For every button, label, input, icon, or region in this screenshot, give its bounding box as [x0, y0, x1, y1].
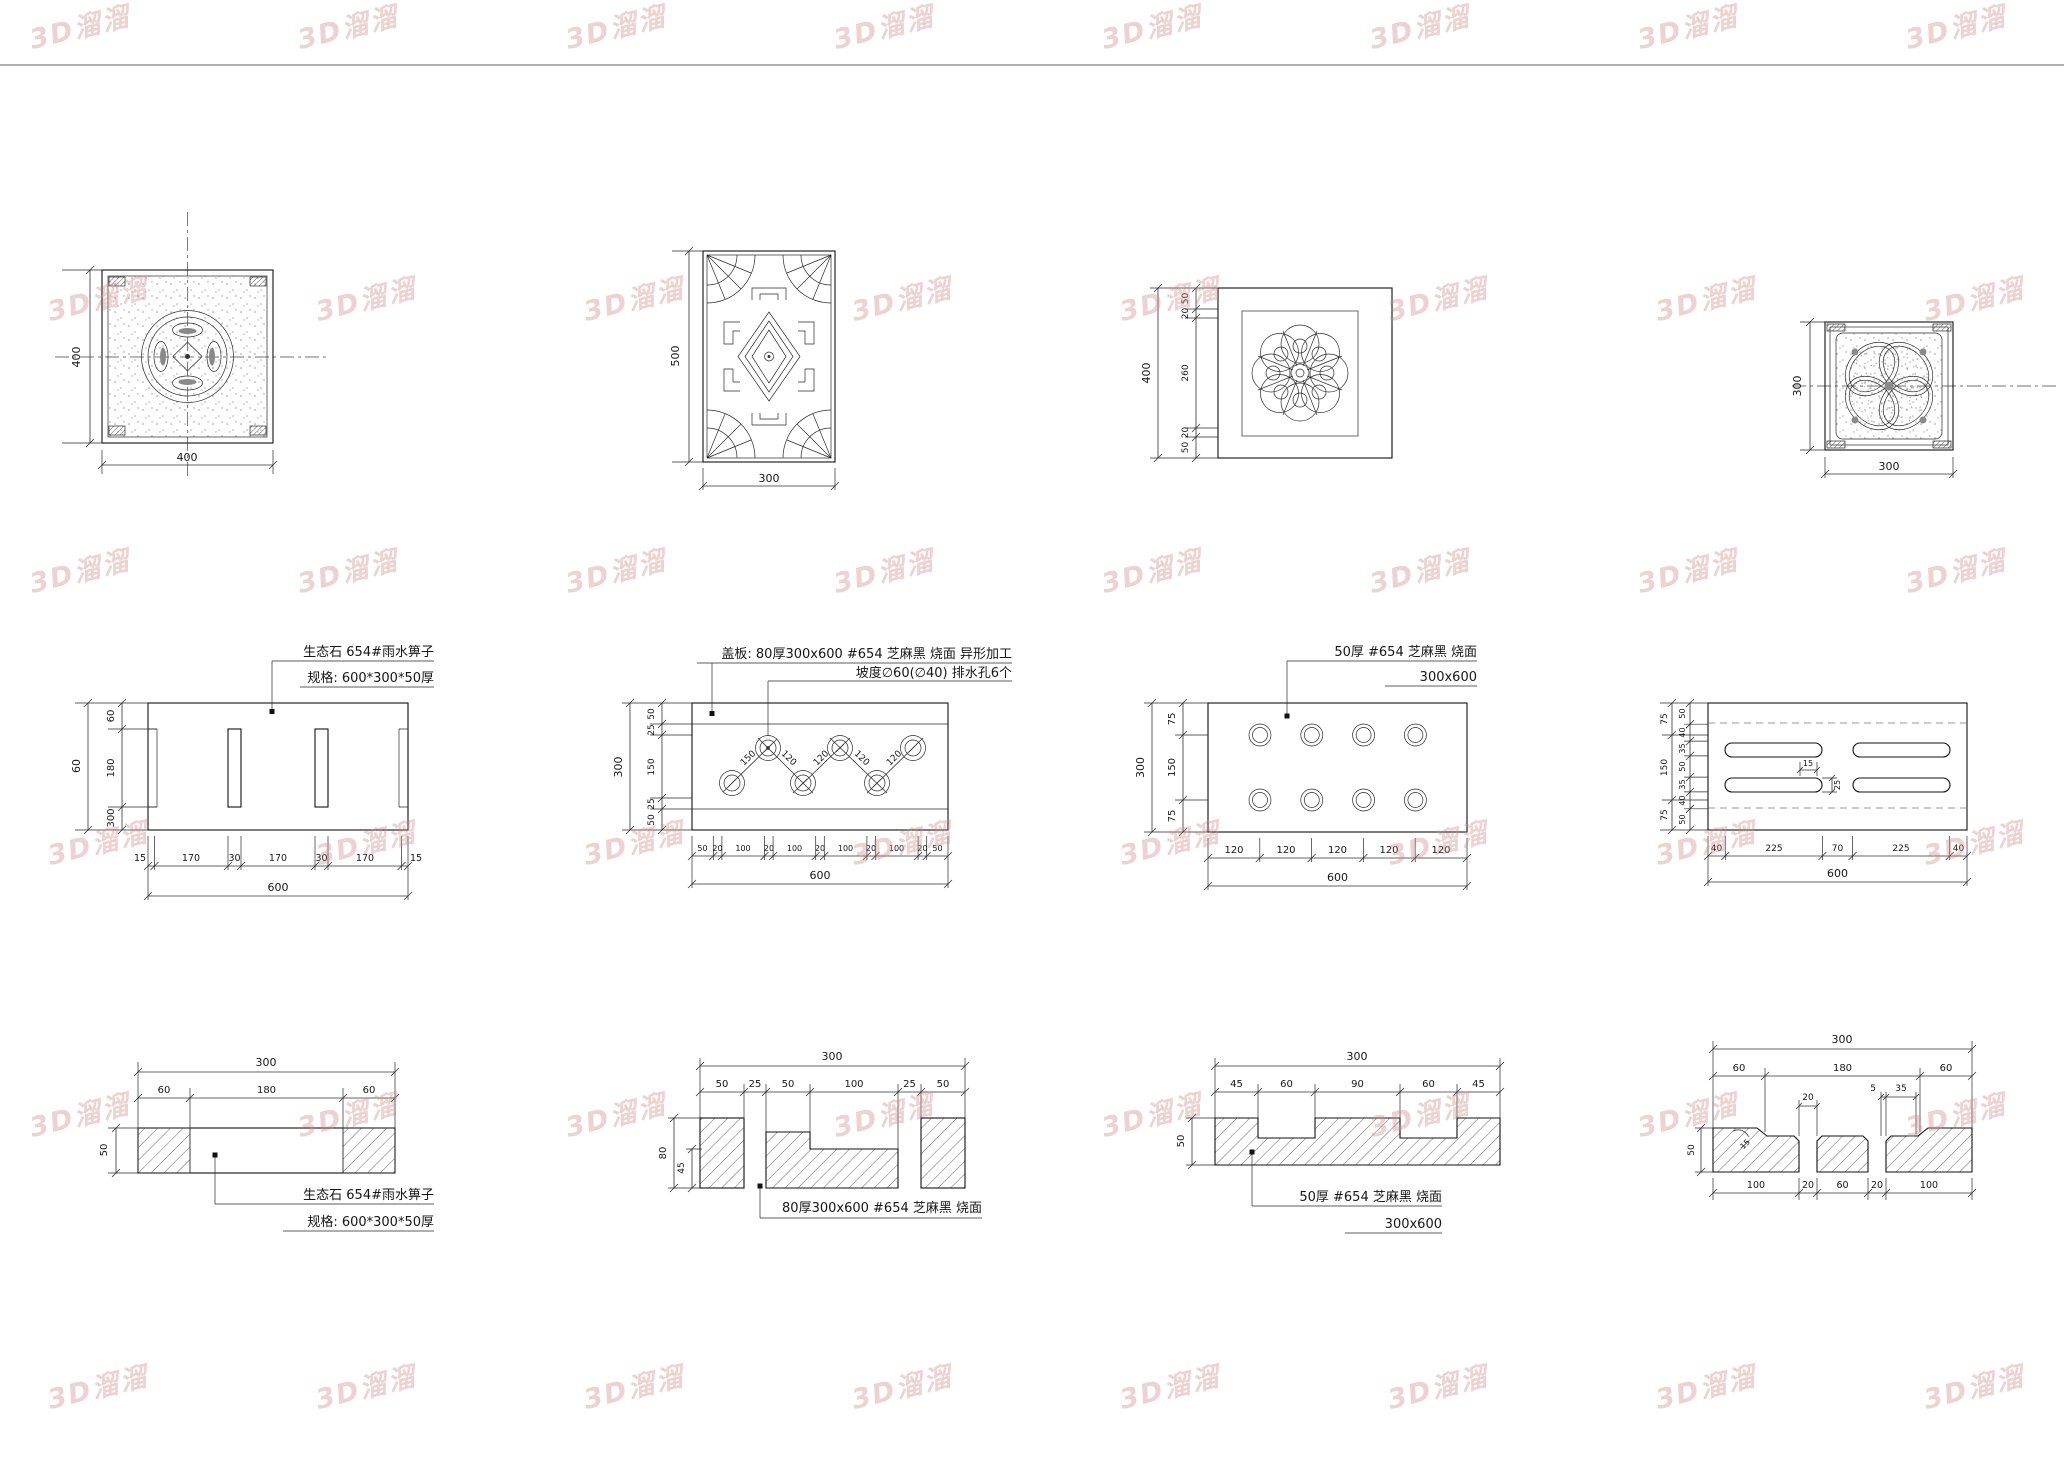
watermark: 3D溜溜 [293, 538, 403, 601]
watermark: 3D溜溜 [25, 538, 135, 601]
watermark: 3D溜溜 [829, 0, 939, 57]
watermark: 3D溜溜 [579, 266, 689, 329]
watermark: 3D溜溜 [43, 266, 153, 329]
watermark: 3D溜溜 [1901, 1082, 2011, 1145]
watermark: 3D溜溜 [25, 0, 135, 57]
watermark: 3D溜溜 [1383, 1354, 1493, 1417]
watermark: 3D溜溜 [847, 266, 957, 329]
watermark: 3D溜溜 [25, 1082, 135, 1145]
watermark: 3D溜溜 [829, 1082, 939, 1145]
watermark: 3D溜溜 [1633, 1082, 1743, 1145]
watermark: 3D溜溜 [1633, 0, 1743, 57]
watermark: 3D溜溜 [293, 1082, 403, 1145]
watermark: 3D溜溜 [847, 1354, 957, 1417]
watermark: 3D溜溜 [1365, 0, 1475, 57]
watermark: 3D溜溜 [1115, 266, 1225, 329]
watermark: 3D溜溜 [829, 538, 939, 601]
watermark: 3D溜溜 [579, 810, 689, 873]
watermark: 3D溜溜 [1633, 538, 1743, 601]
watermark: 3D溜溜 [1383, 810, 1493, 873]
watermark: 3D溜溜 [43, 1354, 153, 1417]
watermark: 3D溜溜 [1097, 1082, 1207, 1145]
watermark: 3D溜溜 [1365, 538, 1475, 601]
watermark: 3D溜溜 [1901, 538, 2011, 601]
watermark: 3D溜溜 [1097, 538, 1207, 601]
watermark: 3D溜溜 [1651, 266, 1761, 329]
watermark: 3D溜溜 [561, 0, 671, 57]
watermark: 3D溜溜 [1115, 810, 1225, 873]
watermark: 3D溜溜 [1115, 1354, 1225, 1417]
watermark-layer: 3D溜溜3D溜溜3D溜溜3D溜溜3D溜溜3D溜溜3D溜溜3D溜溜3D溜溜3D溜溜… [0, 0, 2064, 1460]
watermark: 3D溜溜 [561, 538, 671, 601]
watermark: 3D溜溜 [1651, 1354, 1761, 1417]
watermark: 3D溜溜 [1901, 0, 2011, 57]
watermark: 3D溜溜 [847, 810, 957, 873]
watermark: 3D溜溜 [1919, 1354, 2029, 1417]
watermark: 3D溜溜 [1365, 1082, 1475, 1145]
watermark: 3D溜溜 [43, 810, 153, 873]
watermark: 3D溜溜 [311, 266, 421, 329]
watermark: 3D溜溜 [1919, 810, 2029, 873]
watermark: 3D溜溜 [293, 0, 403, 57]
cad-sheet: 3D溜溜3D溜溜3D溜溜3D溜溜3D溜溜3D溜溜3D溜溜3D溜溜3D溜溜3D溜溜… [0, 0, 2064, 1460]
watermark: 3D溜溜 [311, 1354, 421, 1417]
watermark: 3D溜溜 [579, 1354, 689, 1417]
watermark: 3D溜溜 [1919, 266, 2029, 329]
watermark: 3D溜溜 [1097, 0, 1207, 57]
watermark: 3D溜溜 [1651, 810, 1761, 873]
watermark: 3D溜溜 [1383, 266, 1493, 329]
watermark: 3D溜溜 [561, 1082, 671, 1145]
watermark: 3D溜溜 [311, 810, 421, 873]
